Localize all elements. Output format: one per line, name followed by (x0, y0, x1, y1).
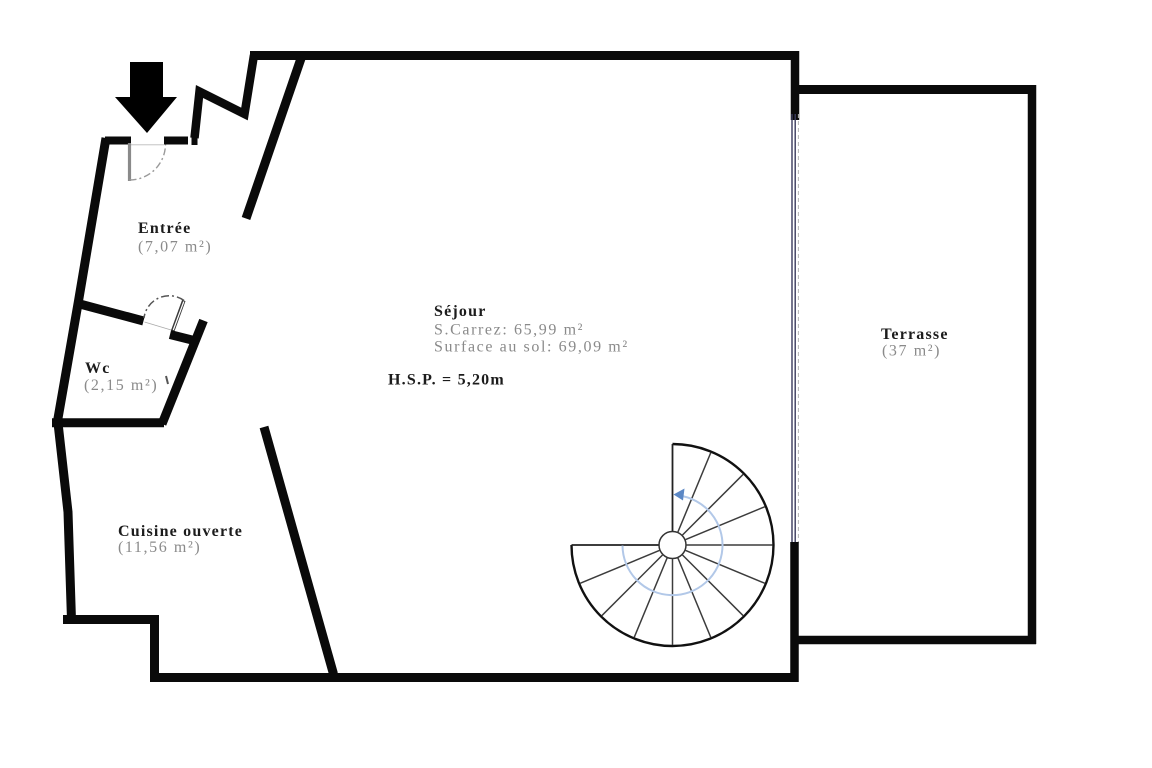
svg-text:(2,15 m²): (2,15 m²) (84, 377, 158, 394)
svg-text:H.S.P. = 5,20m: H.S.P. = 5,20m (388, 372, 505, 389)
svg-text:Surface au sol: 69,09 m²: Surface au sol: 69,09 m² (434, 339, 629, 356)
svg-text:(7,07 m²): (7,07 m²) (138, 239, 212, 256)
svg-text:Wc: Wc (85, 360, 111, 377)
svg-text:(11,56 m²): (11,56 m²) (118, 539, 201, 556)
svg-text:Séjour: Séjour (434, 303, 487, 320)
svg-text:(37 m²): (37 m²) (882, 343, 941, 360)
svg-text:S.Carrez: 65,99 m²: S.Carrez: 65,99 m² (434, 322, 584, 339)
svg-text:Terrasse: Terrasse (881, 326, 949, 343)
svg-text:Entrée: Entrée (138, 220, 191, 237)
svg-text:Cuisine ouverte: Cuisine ouverte (118, 523, 243, 540)
